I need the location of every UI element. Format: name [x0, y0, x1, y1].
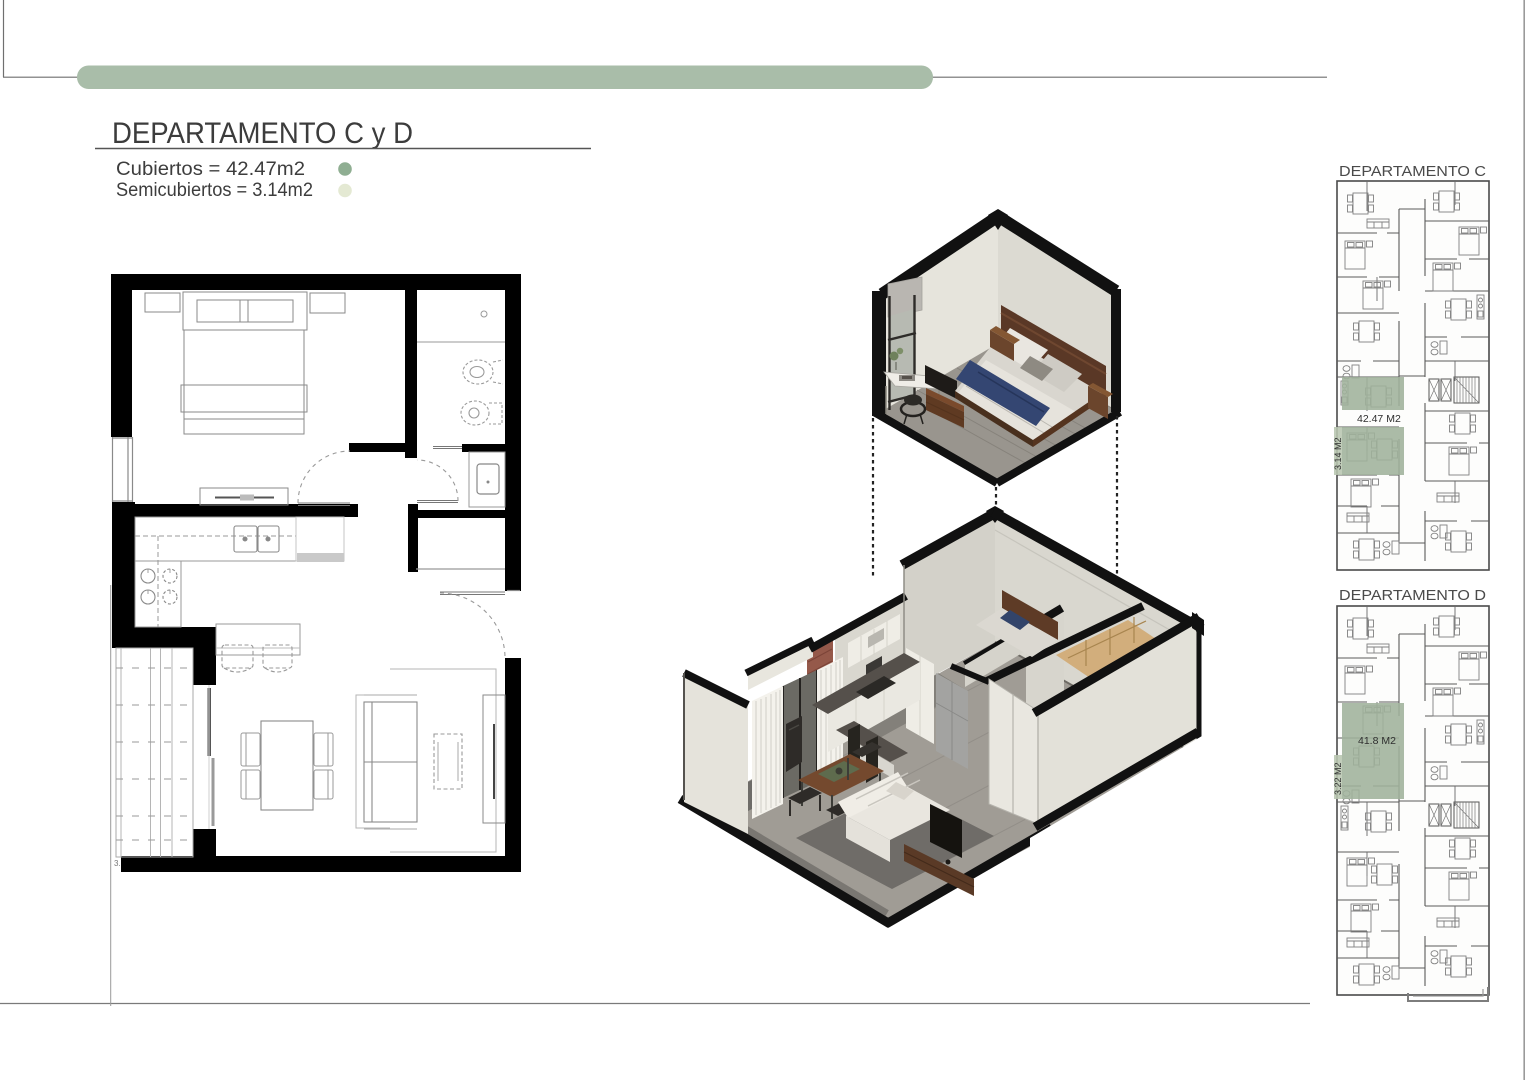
svg-text:41.8 M2: 41.8 M2 [1358, 735, 1396, 747]
svg-text:DEPARTAMENTO C: DEPARTAMENTO C [1339, 164, 1486, 180]
svg-text:3.14 M2: 3.14 M2 [1333, 437, 1343, 470]
svg-text:3.22 M2: 3.22 M2 [1333, 762, 1343, 795]
svg-text:42.47 M2: 42.47 M2 [1357, 413, 1401, 425]
svg-text:Semicubiertos = 3.14m2: Semicubiertos = 3.14m2 [116, 179, 313, 201]
svg-text:Cubiertos = 42.47m2: Cubiertos = 42.47m2 [116, 158, 305, 180]
svg-text:3.: 3. [114, 859, 121, 868]
svg-text:DEPARTAMENTO C y D: DEPARTAMENTO C y D [112, 117, 413, 150]
svg-text:DEPARTAMENTO D: DEPARTAMENTO D [1339, 588, 1486, 604]
